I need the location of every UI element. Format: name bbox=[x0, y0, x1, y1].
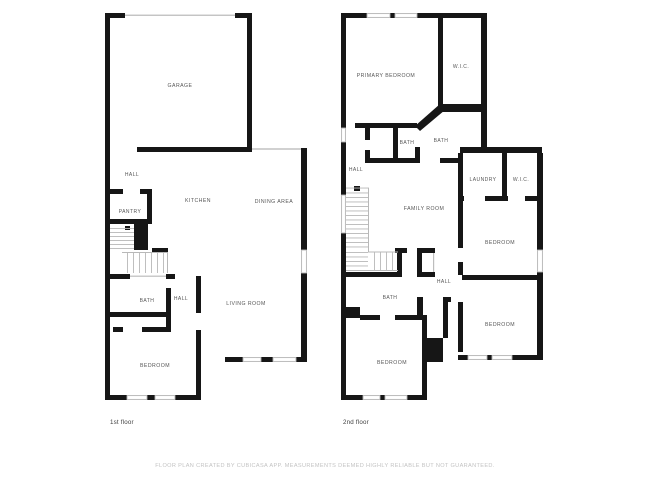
room-label-garage: GARAGE bbox=[168, 83, 193, 89]
room-label-bedroom-top-right: BEDROOM bbox=[485, 240, 515, 246]
bedroom-window-1 bbox=[127, 396, 147, 400]
left-bedroom-window-1 bbox=[363, 396, 380, 400]
room-label-living-room: LIVING ROOM bbox=[226, 301, 266, 307]
room-label-bath: BATH bbox=[140, 298, 155, 304]
stairwell-window bbox=[342, 195, 346, 233]
room-label-bedroom-bottom-left: BEDROOM bbox=[377, 360, 407, 366]
primary-bedroom-window-1 bbox=[367, 14, 390, 18]
floor1-thin-lines bbox=[125, 15, 301, 277]
room-label-bath-right: BATH bbox=[434, 138, 449, 144]
room-label-primary-bedroom: PRIMARY BEDROOM bbox=[357, 73, 415, 79]
floor-plan-image: GARAGE HALL PANTRY KITCHEN DINING AREA B… bbox=[0, 0, 650, 487]
living-room-window-1 bbox=[243, 358, 261, 362]
solid-block bbox=[425, 338, 443, 362]
bath-opening-line bbox=[130, 276, 166, 277]
living-room-side-window bbox=[302, 250, 307, 273]
room-label-hall-upper2: HALL bbox=[349, 167, 363, 173]
room-label-dining-area: DINING AREA bbox=[255, 199, 293, 205]
room-label-laundry: LAUNDRY bbox=[470, 177, 497, 183]
living-room-window-2 bbox=[273, 358, 296, 362]
floor2-plan: PRIMARY BEDROOM W.I.C. BATH BATH HALL LA… bbox=[341, 13, 543, 426]
left-bedroom-window-2 bbox=[385, 396, 407, 400]
left-wall-window-1 bbox=[342, 128, 346, 142]
floor2-caption: 2nd floor bbox=[343, 419, 369, 426]
floor2-stairs bbox=[346, 186, 398, 271]
footer-disclaimer: FLOOR PLAN CREATED BY CUBICASA APP. MEAS… bbox=[155, 463, 495, 469]
diagonal-wall bbox=[415, 104, 445, 131]
room-label-bedroom: BEDROOM bbox=[140, 363, 170, 369]
bedroom-window-2 bbox=[155, 396, 175, 400]
right-bedroom-window-2 bbox=[492, 356, 512, 360]
room-label-bedroom-mid-right: BEDROOM bbox=[485, 322, 515, 328]
floor1-caption: 1st floor bbox=[110, 419, 134, 426]
floor1-walls bbox=[105, 13, 307, 400]
room-label-wic-top: W.I.C. bbox=[453, 64, 469, 70]
room-label-hall-lower: HALL bbox=[437, 279, 451, 285]
hall-door-line bbox=[433, 253, 434, 272]
room-label-family-room: FAMILY ROOM bbox=[404, 206, 445, 212]
room-label-hall-upper: HALL bbox=[125, 172, 139, 178]
room-label-bath-left: BATH bbox=[400, 140, 415, 146]
room-label-bath-lower: BATH bbox=[383, 295, 398, 301]
room-label-hall-small: HALL bbox=[174, 296, 188, 302]
floor1-windows bbox=[127, 250, 306, 399]
room-label-pantry: PANTRY bbox=[119, 209, 142, 215]
floor2-thin-lines bbox=[433, 253, 434, 272]
floor-plan-page: GARAGE HALL PANTRY KITCHEN DINING AREA B… bbox=[0, 0, 650, 487]
floor1-plan: GARAGE HALL PANTRY KITCHEN DINING AREA B… bbox=[105, 13, 307, 426]
garage-door-line bbox=[125, 15, 235, 16]
room-label-kitchen: KITCHEN bbox=[185, 198, 211, 204]
dining-window-line bbox=[252, 148, 301, 149]
right-bedroom-side-window bbox=[538, 250, 543, 272]
room-label-wic-right: W.I.C. bbox=[513, 177, 529, 183]
right-bedroom-window-1 bbox=[468, 356, 487, 360]
primary-bedroom-window-2 bbox=[395, 14, 417, 18]
